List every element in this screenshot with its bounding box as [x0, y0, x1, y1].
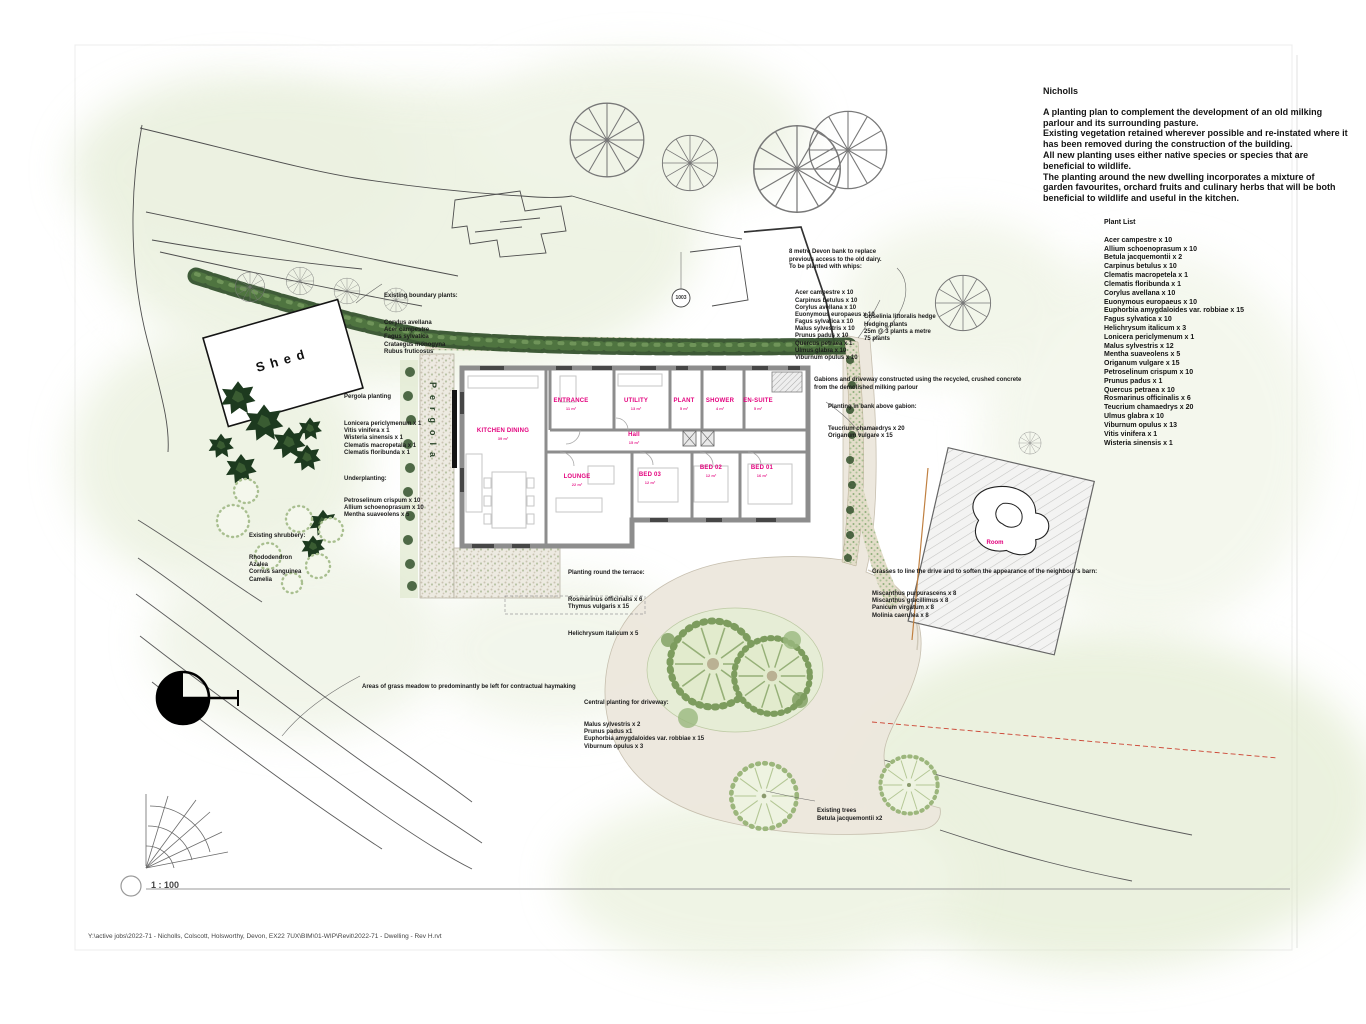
- title-block: Nicholls A planting plan to complement t…: [1043, 86, 1363, 204]
- pergola-planting-note: Pergola planting Lonicera periclymenum x…: [344, 380, 424, 527]
- pergola-label: Pergola: [428, 382, 438, 464]
- file-path: Y:\active jobs\2022-71 - Nicholls, Colsc…: [88, 933, 442, 940]
- room-label-lounge: LOUNGE22 m²: [564, 474, 591, 487]
- central-planting-note: Central planting for driveway: Malus syl…: [584, 686, 704, 758]
- griselinia-note: Griselinia littoralis hedgeHedging plant…: [864, 300, 936, 350]
- room-label-bed03: BED 0312 m²: [639, 472, 661, 485]
- project-description: A planting plan to complement the develo…: [1043, 107, 1363, 204]
- planting-plan-sheet: Nicholls A planting plan to complement t…: [0, 0, 1366, 1024]
- terrace-patio: [454, 548, 560, 598]
- barn-room-label: Room: [987, 540, 1004, 546]
- room-label-bed02: BED 0212 m²: [700, 465, 722, 478]
- keynote-1003-label: 1003: [675, 295, 686, 301]
- meadow-note: Areas of grass meadow to predominantly b…: [362, 670, 576, 699]
- room-label-entrance: ENTRANCE11 m²: [554, 398, 589, 411]
- existing-trees-note: Existing treesBetula jacquemontii x2: [817, 794, 882, 830]
- room-label-utility: UTILITY13 m²: [624, 398, 648, 411]
- plant-list: Plant List Acer campestre x 10Allium sch…: [1104, 219, 1244, 448]
- grasses-note: Grasses to line the drive and to soften …: [872, 555, 1097, 627]
- rooflight-hatch: [772, 372, 802, 392]
- boundary-plants-note: Existing boundary plants: Corylus avella…: [384, 279, 458, 363]
- plant-list-heading: Plant List: [1104, 219, 1244, 228]
- room-label-kitchen-dining: KITCHEN DINING39 m²: [477, 428, 529, 441]
- shrubbery-note: Existing shrubbery: RhododendronAzaleaCo…: [249, 519, 305, 591]
- room-label-bed01: BED 0116 m²: [751, 465, 773, 478]
- room-label-ensuite: EN-SUITE5 m²: [743, 398, 773, 411]
- room-label-hall: Hall15 m²: [628, 432, 640, 445]
- client-name: Nicholls: [1043, 86, 1363, 97]
- bank-above-gabion-note: Planting in bank above gabion: Teucrium …: [828, 390, 917, 448]
- house-floor-plan: [460, 366, 808, 548]
- terrace-planting-note: Planting round the terrace: Rosmarinus o…: [568, 556, 645, 645]
- room-label-shower: SHOWER4 m²: [706, 398, 734, 411]
- room-label-plant: PLANT5 m²: [674, 398, 695, 411]
- scale-label: 1 : 100: [151, 880, 179, 890]
- plant-list-items: Acer campestre x 10Allium schoenoprasum …: [1104, 237, 1244, 449]
- pergola-wall-bar: [452, 390, 457, 468]
